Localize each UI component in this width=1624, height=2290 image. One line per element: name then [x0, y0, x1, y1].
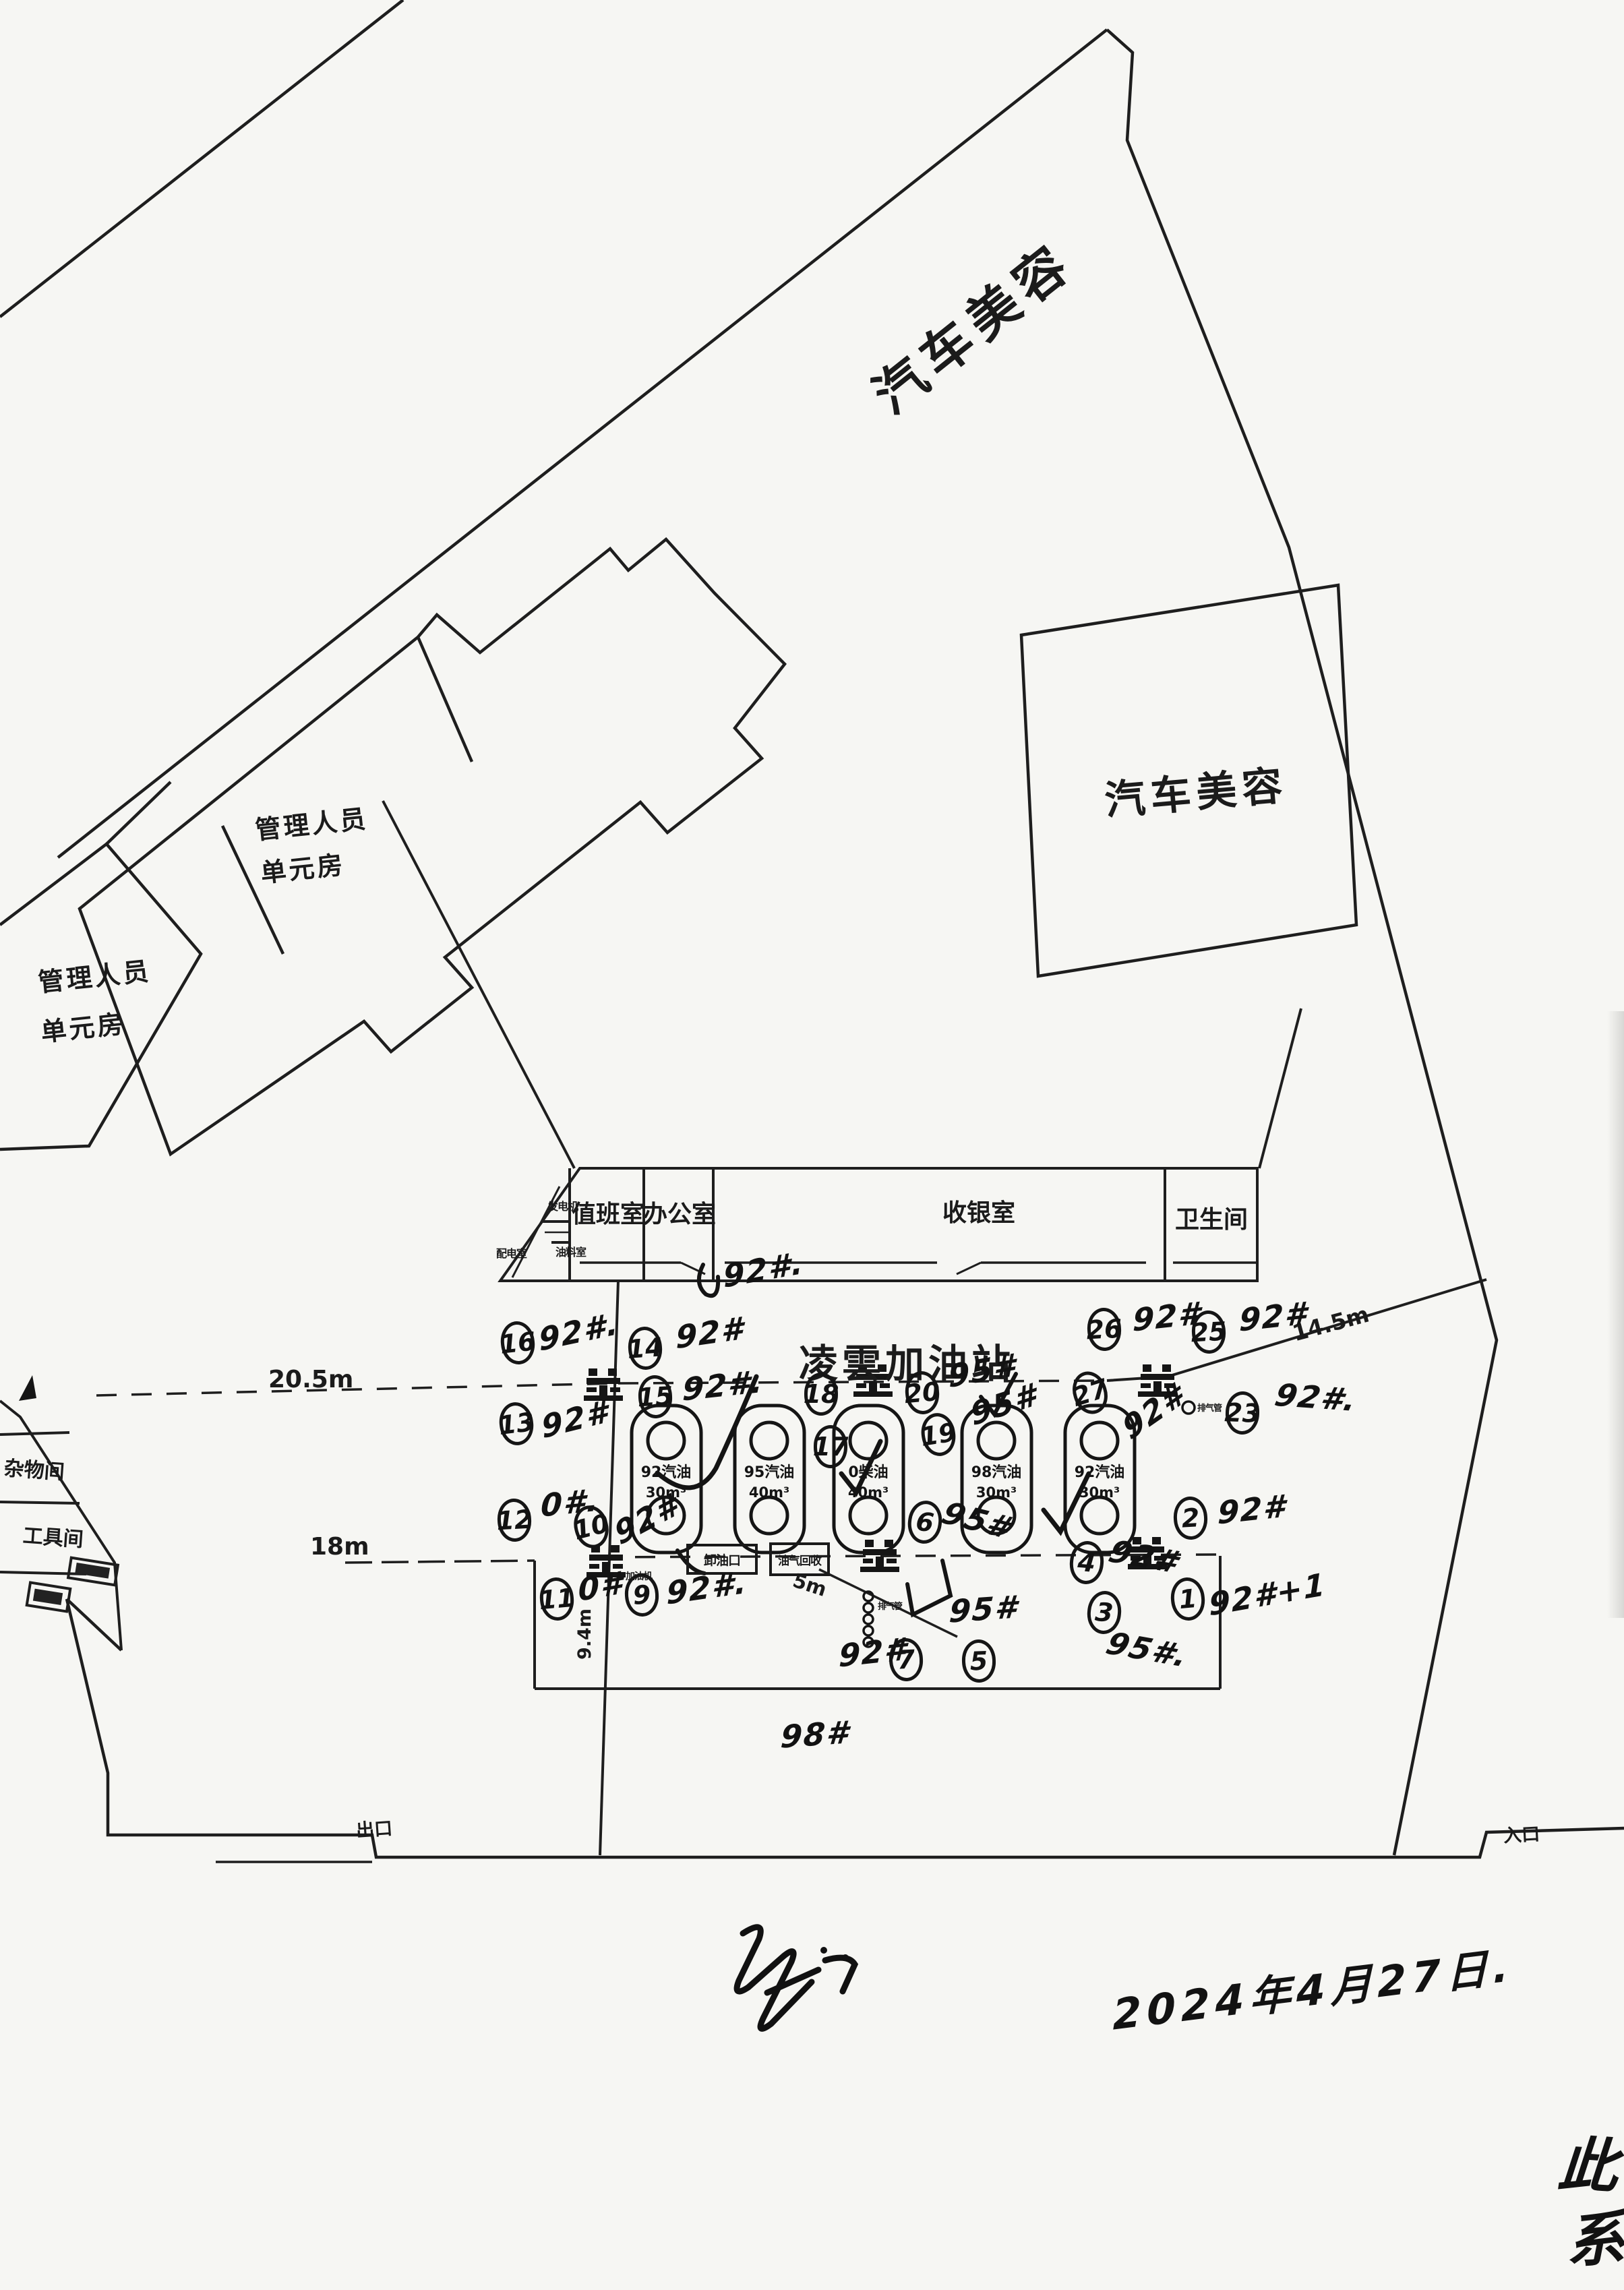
annotation-grade: 92#.	[1271, 1377, 1361, 1418]
tank-2-grade: 95汽油	[744, 1464, 795, 1481]
signature-scribble	[737, 1927, 855, 2029]
dimension-9-4m: 9.4m	[574, 1608, 595, 1660]
left-rooms-strip	[0, 1375, 121, 1650]
tank-2: 95汽油 40m³	[735, 1406, 804, 1553]
aux-room-power: 配电室	[496, 1244, 527, 1261]
vapor-recovery-label: 油气回收	[778, 1551, 821, 1568]
room-label-office: 办公室	[626, 1195, 733, 1230]
vent-label-1: 排气管	[878, 1599, 902, 1612]
tank-2-volume: 40m³	[749, 1484, 789, 1501]
vent-label-2: 排气管	[1197, 1401, 1222, 1414]
aux-room-generator: 发电机	[547, 1197, 578, 1213]
entrance-label: 入口	[1503, 1819, 1540, 1848]
annotation-grade: 98#	[779, 1714, 851, 1755]
annotation-circle-17: 17	[814, 1425, 847, 1468]
annotation-grade: 95#	[948, 1588, 1019, 1630]
tank-5-grade: 92汽油	[1075, 1464, 1125, 1481]
left-room-sundries: 杂物间	[3, 1451, 66, 1485]
annotation-grade: 92#	[1217, 1487, 1286, 1531]
exit-label: 出口	[355, 1813, 394, 1842]
room-label-cashier: 收银室	[925, 1193, 1033, 1228]
north-arrow-icon	[19, 1375, 36, 1401]
tank-4-volume: 30m³	[976, 1484, 1017, 1501]
left-room-tools: 工具间	[22, 1519, 85, 1553]
site-plan-linework: 92汽油 30m³ 95汽油 40m³ 0柴油 40m³ 98汽油 30m³ 9…	[0, 0, 1624, 2290]
annotation-grade: 92#	[1238, 1294, 1308, 1338]
annotation-circle-18: 18	[804, 1373, 838, 1416]
scan-shadow	[1607, 1011, 1624, 1618]
tank-5-volume: 30m³	[1079, 1484, 1120, 1501]
corner-note-char-2: 系	[1563, 2191, 1624, 2280]
building-management-strip	[80, 539, 785, 1154]
road-band-lines	[0, 0, 1107, 857]
annotation-grade: 92#	[838, 1630, 907, 1674]
aux-room-oil: 油料室	[555, 1243, 586, 1259]
tank-4-grade: 98汽油	[971, 1464, 1022, 1481]
room-label-toilet: 卫生间	[1157, 1200, 1265, 1235]
dimension-18m: 18m	[310, 1533, 369, 1561]
dimension-20-5m: 20.5m	[268, 1366, 353, 1393]
scanned-site-plan: { "site": { "road_band_label": "汽车美容", "…	[0, 0, 1624, 2290]
